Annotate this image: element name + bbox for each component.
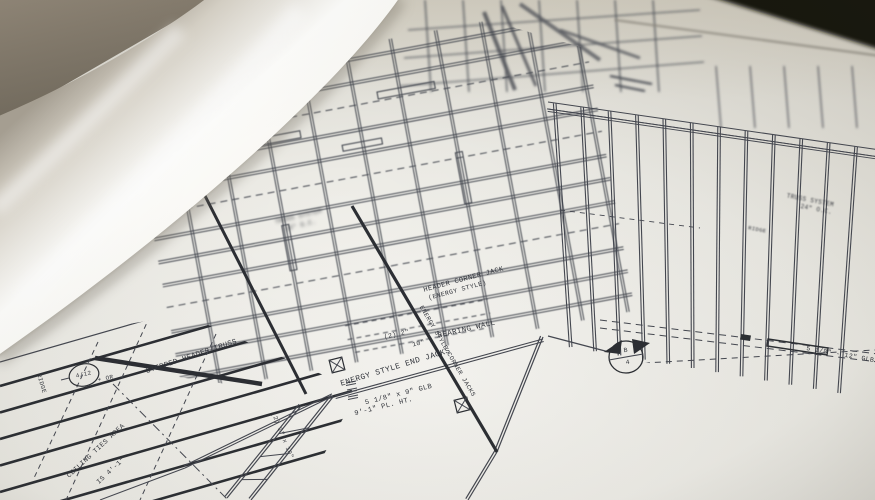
- blueprint-photo: TRUSS SYSTEM16" O.C.HEADER CORNER JACK(E…: [0, 0, 875, 500]
- vignette-overlay: [0, 0, 875, 500]
